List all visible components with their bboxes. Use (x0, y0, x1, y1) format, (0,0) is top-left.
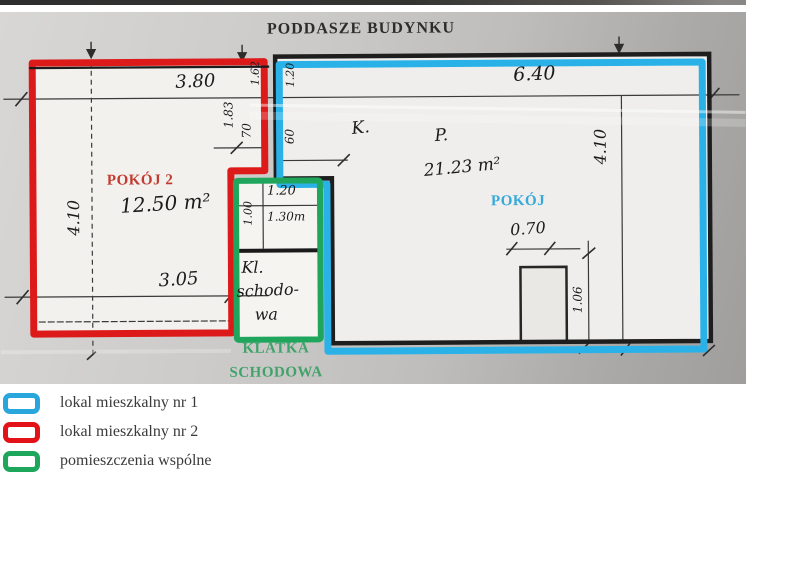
room1-label: POKÓJ (491, 193, 545, 210)
legend-swatch-unit2 (3, 422, 40, 443)
legend: lokal mieszkalny nr 1 lokal mieszkalny n… (0, 392, 400, 482)
floor-plan-page: { "title": "PODDASZE BUDYNKU", "plan": {… (0, 0, 800, 561)
dim-top-right: 6.40 (513, 64, 556, 85)
dim-notch-right-lower: 60 (284, 121, 296, 151)
dim-notch-left-mid: 1.83 (222, 95, 234, 135)
floor-plan-photo: PODDASZE BUDYNKU POKÓJ 2 POKÓJ KLATKA SC… (0, 12, 746, 384)
plan-linework (0, 12, 746, 384)
dim-stair-top: 1.20 (267, 184, 296, 197)
door-opening-detail (520, 267, 566, 342)
room2-area: 12.50 m² (120, 191, 212, 216)
plan-drawing: PODDASZE BUDYNKU POKÓJ 2 POKÓJ KLATKA SC… (0, 12, 746, 384)
staircase-label-line2: SCHODOWA (196, 364, 356, 382)
legend-label-unit1: lokal mieszkalny nr 1 (60, 394, 198, 412)
room1-mark: P. (434, 127, 449, 145)
dim-notch-right-upper: 1.20 (285, 55, 296, 95)
dim-room2-bottom: 3.05 (158, 270, 199, 290)
staircase-landing-wall (235, 250, 322, 251)
photo-top-border (0, 0, 746, 5)
staircase-label-line1: KLATKA (196, 340, 356, 358)
legend-label-common: pomieszczenia wspólne (60, 452, 212, 470)
legend-swatch-unit1 (3, 393, 40, 414)
dim-notch-left-upper: 1.62 (250, 53, 261, 93)
dim-right-height: 4.10 (593, 125, 609, 169)
unit2-top-wall (29, 67, 269, 68)
staircase-note-line1: Kl. (241, 260, 263, 276)
dim-door-width: 0.70 (510, 220, 547, 239)
staircase-note-line3: wa (255, 307, 278, 323)
dim-stair-left: 1.00 (242, 195, 253, 231)
staircase-note-line2: schodo- (236, 281, 299, 300)
legend-label-unit2: lokal mieszkalny nr 2 (60, 423, 198, 441)
page-title: PODDASZE BUDYNKU (267, 19, 455, 38)
dim-stair-inner: 1.30m (267, 210, 305, 222)
dim-door-depth: 1.06 (572, 280, 584, 320)
dim-notch-left-lower: 70 (240, 116, 252, 146)
dim-left-height: 4.10 (66, 196, 82, 240)
room2-mark: K. (351, 119, 371, 138)
room2-label: POKÓJ 2 (107, 172, 174, 189)
dim-top-left: 3.80 (175, 72, 216, 92)
legend-swatch-common (3, 451, 40, 472)
